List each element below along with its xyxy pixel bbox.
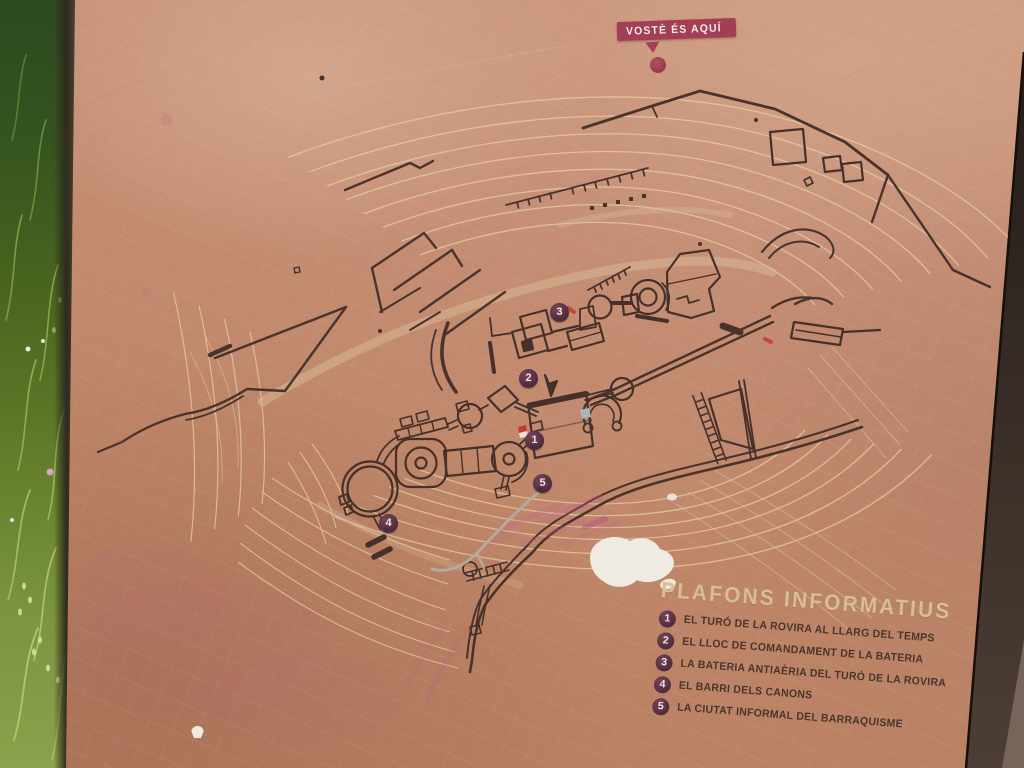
legend: PLAFONS INFORMATIUS 1 EL TURÓ DE LA ROVI… (652, 577, 961, 735)
map-buildings (294, 76, 880, 636)
legend-badge-3: 3 (655, 653, 673, 671)
map-marker-3: 3 (550, 303, 569, 322)
you-are-here-label: VOSTÈ ÉS AQUÍ (626, 22, 722, 37)
map-marker-1: 1 (525, 431, 544, 450)
map-marker-2: 2 (519, 369, 538, 388)
legend-badge-2: 2 (657, 631, 675, 649)
you-are-here-dot-icon (650, 57, 666, 73)
map-marker-4: 4 (379, 514, 398, 533)
legend-badge-1: 1 (658, 609, 676, 627)
photo-of-information-panel: 1 2 3 4 5 VOSTÈ ÉS AQUÍ PLAFONS INFORMAT… (0, 0, 1024, 768)
map-marker-5: 5 (533, 474, 552, 493)
legend-badge-4: 4 (653, 675, 671, 693)
legend-label-4: EL BARRI DELS CANONS (678, 680, 812, 702)
legend-badge-5: 5 (652, 697, 670, 715)
